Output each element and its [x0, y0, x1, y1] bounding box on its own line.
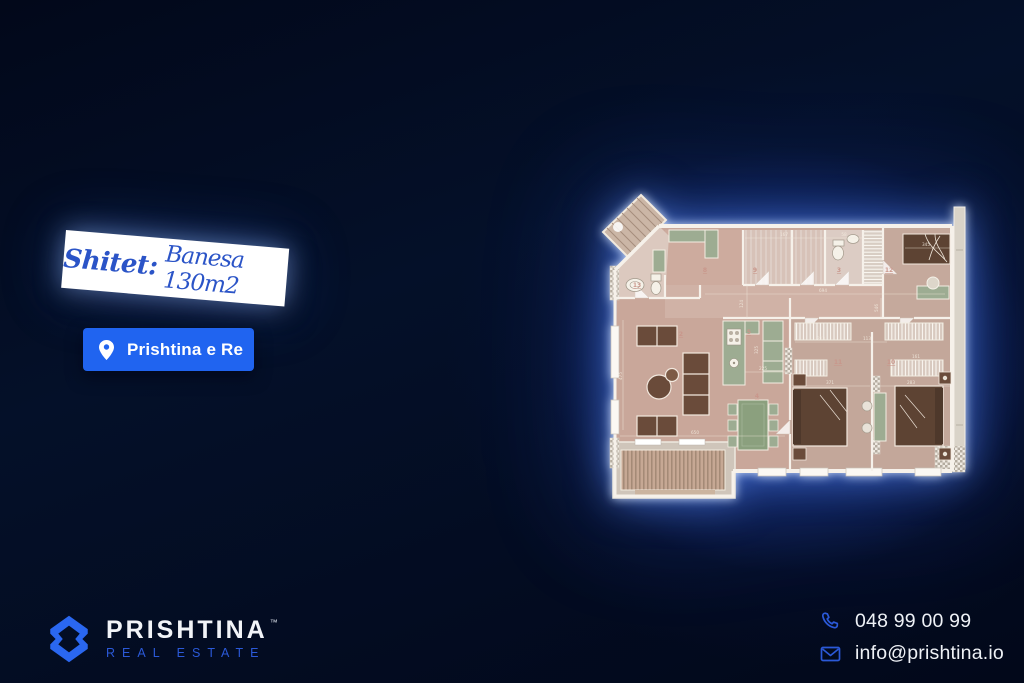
location-button-label: Prishtina e Re [127, 340, 243, 360]
email-contact[interactable]: info@prishtina.io [820, 642, 1004, 665]
location-button[interactable]: Prishtina e Re [83, 328, 254, 371]
email-address: info@prishtina.io [855, 642, 1004, 665]
svg-text:213: 213 [817, 336, 825, 341]
brand-tagline: REAL ESTATE [106, 647, 278, 660]
brand-logo-icon [46, 614, 92, 664]
svg-text:10: 10 [887, 359, 895, 366]
svg-text:124: 124 [739, 300, 744, 308]
brand-logo: PRISHTINA ™ REAL ESTATE [46, 614, 278, 664]
svg-text:325: 325 [754, 346, 759, 354]
svg-text:11: 11 [834, 359, 842, 366]
svg-text:694: 694 [819, 288, 827, 293]
svg-text:345: 345 [922, 242, 930, 247]
svg-text:4: 4 [755, 393, 759, 400]
phone-icon [820, 611, 841, 632]
contact-block: 048 99 00 99 info@prishtina.io [820, 610, 1004, 665]
svg-text:13: 13 [633, 282, 641, 289]
listing-banner-title: Banesa 130m2 [162, 241, 289, 303]
envelope-icon [820, 646, 841, 662]
svg-text:58: 58 [841, 232, 847, 237]
phone-contact[interactable]: 048 99 00 99 [820, 610, 1004, 633]
svg-text:3: 3 [837, 267, 841, 274]
svg-text:9: 9 [753, 267, 757, 274]
svg-text:8: 8 [703, 267, 707, 274]
svg-text:283: 283 [907, 380, 915, 385]
phone-number: 048 99 00 99 [855, 610, 971, 633]
svg-text:161: 161 [912, 354, 920, 359]
listing-banner-prefix: Shitet: [62, 244, 158, 282]
svg-text:12: 12 [885, 267, 893, 274]
svg-text:650: 650 [691, 430, 699, 435]
location-pin-icon [99, 340, 114, 360]
svg-text:475: 475 [618, 372, 623, 380]
trademark-symbol: ™ [270, 619, 278, 627]
svg-text:113: 113 [863, 336, 871, 341]
svg-text:225: 225 [759, 366, 767, 371]
svg-text:546: 546 [874, 304, 879, 312]
svg-text:2: 2 [679, 331, 683, 338]
floor-plan: 1675834569412421311354616122532537128365… [595, 190, 975, 508]
svg-text:167: 167 [780, 232, 788, 237]
svg-text:371: 371 [826, 380, 834, 385]
brand-name: PRISHTINA [106, 618, 268, 643]
svg-text:5: 5 [747, 329, 751, 336]
